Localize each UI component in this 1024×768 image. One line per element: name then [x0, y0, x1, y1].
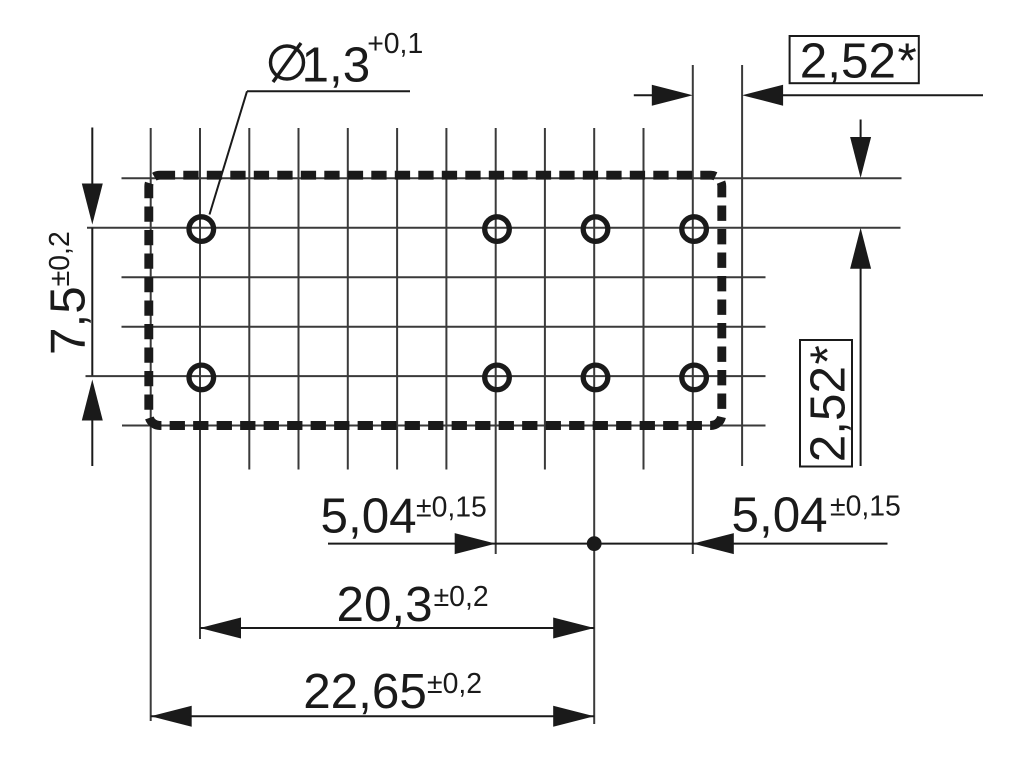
svg-text:±0,15: ±0,15	[830, 491, 901, 523]
svg-text:±0,2: ±0,2	[434, 581, 489, 613]
svg-text:2,52*: 2,52*	[800, 33, 917, 88]
svg-text:±0,2: ±0,2	[44, 231, 76, 286]
svg-text:±0,15: ±0,15	[416, 492, 487, 524]
svg-text:22,65: 22,65	[303, 664, 427, 719]
svg-text:+0,1: +0,1	[367, 28, 423, 60]
svg-text:5,04: 5,04	[321, 489, 417, 544]
svg-text:±0,2: ±0,2	[427, 668, 482, 700]
svg-text:7,5: 7,5	[41, 286, 96, 355]
svg-text:2,52*: 2,52*	[801, 345, 856, 462]
svg-text:5,04: 5,04	[732, 488, 828, 543]
svg-text:20,3: 20,3	[337, 577, 433, 632]
svg-text:1,3: 1,3	[302, 37, 371, 92]
